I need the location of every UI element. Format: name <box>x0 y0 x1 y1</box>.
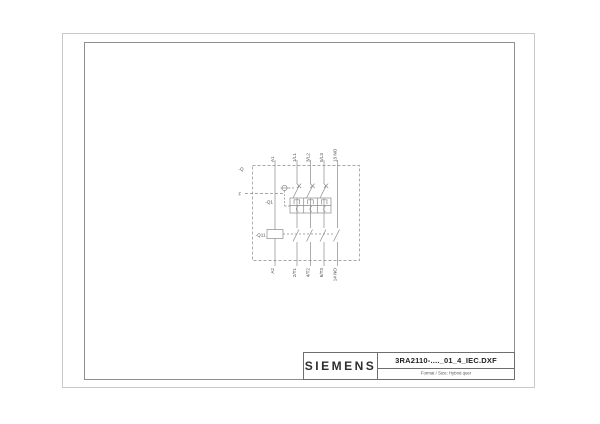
schematic-linework <box>245 160 360 266</box>
brand-logo: SIEMENS <box>304 353 378 379</box>
breaker-contact-cross-icon <box>324 184 328 188</box>
drawing-filename: 3RA2110-...._01_4_IEC.DXF <box>378 353 514 369</box>
title-block-right: 3RA2110-...._01_4_IEC.DXF Format / Size:… <box>378 353 514 379</box>
schematic-labels: -Q F -Q1 -Q11 A1 1/L1 3/L2 5/L3 13 NO A2… <box>239 148 338 281</box>
contactor-contact <box>320 230 326 242</box>
manual-operator-icon <box>281 185 295 206</box>
terminal-label-6t3: 6/T3 <box>319 268 324 278</box>
format-size-label: Format / Size: Hybrid quer <box>421 372 471 376</box>
release-tag-label: F <box>239 191 242 196</box>
terminal-label-4t2: 4/T2 <box>306 268 311 278</box>
terminal-label-14no: 14 NO <box>333 268 338 282</box>
drawing-page: -Q F -Q1 -Q11 A1 1/L1 3/L2 5/L3 13 NO A2… <box>0 0 600 424</box>
aux-contact-circuit <box>334 160 340 266</box>
aux-no-contact <box>334 230 340 242</box>
contactor-coil-symbol <box>267 230 283 239</box>
terminal-label-13no: 13 NO <box>333 148 338 162</box>
breaker-contact-cross-icon <box>310 184 314 188</box>
contactor-contact <box>307 230 313 242</box>
breaker-contact-cross-icon <box>297 184 301 188</box>
terminal-label-1l1: 1/L1 <box>292 153 297 162</box>
contactor-tag-label: -Q11 <box>256 232 266 237</box>
breaker-contact <box>320 186 326 198</box>
terminal-label-3l2: 3/L2 <box>306 153 311 162</box>
format-size-row: Format / Size: Hybrid quer <box>378 369 514 379</box>
breaker-contact <box>307 186 313 198</box>
terminal-label-5l3: 5/L3 <box>319 153 324 162</box>
terminal-label-a2: A2 <box>270 268 275 274</box>
magnetic-trip-icon <box>310 206 312 212</box>
contactor-contact <box>293 230 299 242</box>
coil-circuit <box>267 160 283 266</box>
enclosure-tag-label: -Q <box>239 167 245 172</box>
magnetic-trip-icon <box>324 206 326 212</box>
title-block: SIEMENS 3RA2110-...._01_4_IEC.DXF Format… <box>303 352 515 380</box>
terminal-label-2t1: 2/T1 <box>292 268 297 278</box>
terminal-label-a1: A1 <box>270 156 275 162</box>
breaker-tag-label: -Q1 <box>265 199 273 204</box>
circuit-schematic: -Q F -Q1 -Q11 A1 1/L1 3/L2 5/L3 13 NO A2… <box>230 138 370 290</box>
